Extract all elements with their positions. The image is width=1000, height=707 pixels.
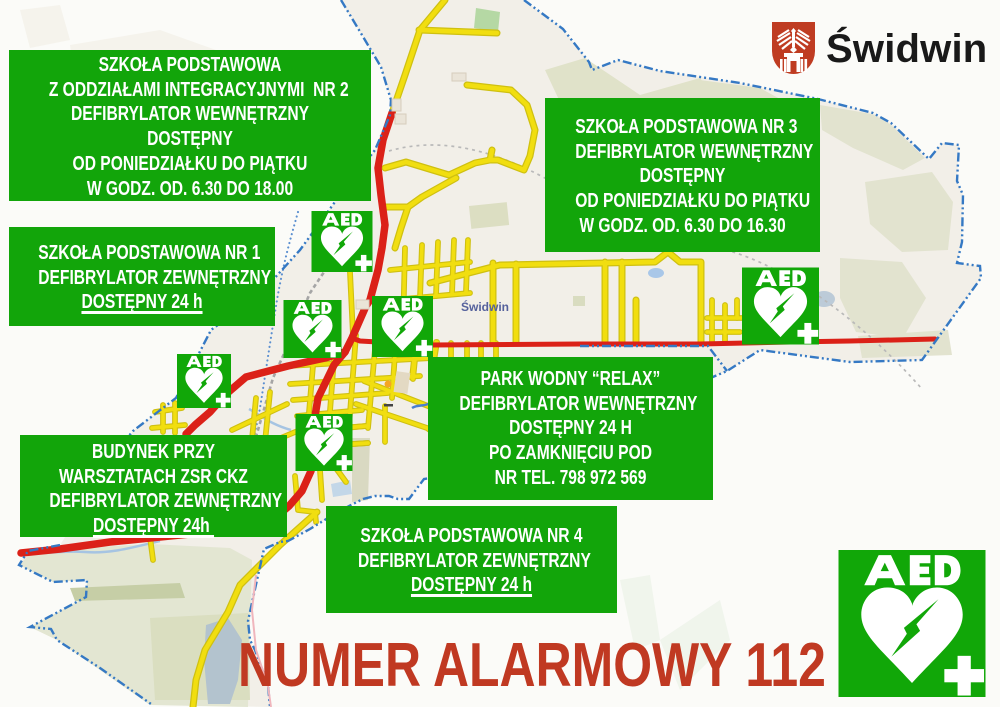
svg-text:Świdwin: Świdwin (461, 299, 509, 314)
